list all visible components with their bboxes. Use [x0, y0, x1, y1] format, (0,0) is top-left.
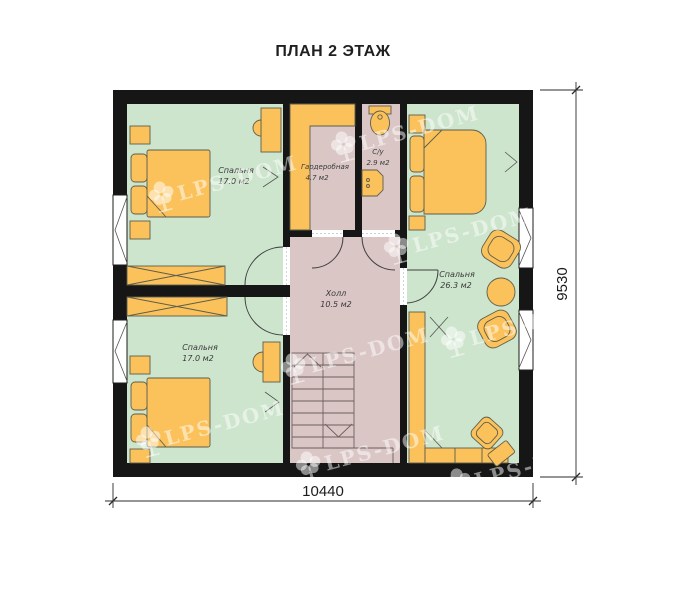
- wardrobe-cabinet: [261, 108, 281, 152]
- round-table: [487, 278, 515, 306]
- page-title: ПЛАН 2 ЭТАЖ: [275, 43, 390, 60]
- pillow: [131, 154, 147, 182]
- room-label: Холл: [325, 289, 347, 298]
- pillow: [131, 382, 147, 410]
- room-area: 10.5 м2: [320, 300, 351, 309]
- window-left-top: [113, 195, 127, 265]
- nightstand: [130, 126, 150, 144]
- floor-plan-page: ПЛАН 2 ЭТАЖ: [0, 0, 700, 600]
- dimension-width-label: 10440: [302, 483, 344, 500]
- pillow: [131, 186, 147, 214]
- floor-plan-drawing: ПЛАН 2 ЭТАЖ: [0, 0, 700, 600]
- nightstand: [130, 221, 150, 239]
- nightstand: [130, 449, 150, 463]
- room-area: 4.7 м2: [305, 174, 329, 182]
- wall-wardrobe-bathroom: [355, 104, 362, 230]
- built-in-closet: [127, 266, 225, 285]
- room-label: Спальня: [182, 343, 218, 352]
- outer-wall-left: [113, 90, 127, 477]
- room-area: 26.3 м2: [440, 281, 471, 290]
- dimension-height-label: 9530: [554, 267, 571, 300]
- room-area: 2.9 м2: [366, 159, 390, 167]
- desk: [263, 342, 280, 382]
- built-in-closet: [127, 297, 227, 316]
- nightstand: [130, 356, 150, 374]
- outer-wall-right: [519, 90, 533, 477]
- wall-between-left-bedrooms: [113, 285, 290, 297]
- dimension-right: 9530: [540, 82, 583, 485]
- room-area: 17.0 м2: [182, 354, 213, 363]
- nightstand: [409, 216, 425, 230]
- sink: [362, 170, 383, 196]
- room-label: Гардеробная: [301, 163, 349, 171]
- pillow: [410, 176, 424, 212]
- window-left-bottom: [113, 320, 127, 383]
- double-bed: [424, 130, 486, 214]
- outer-wall-bottom: [113, 463, 533, 477]
- room-label: Спальня: [439, 270, 475, 279]
